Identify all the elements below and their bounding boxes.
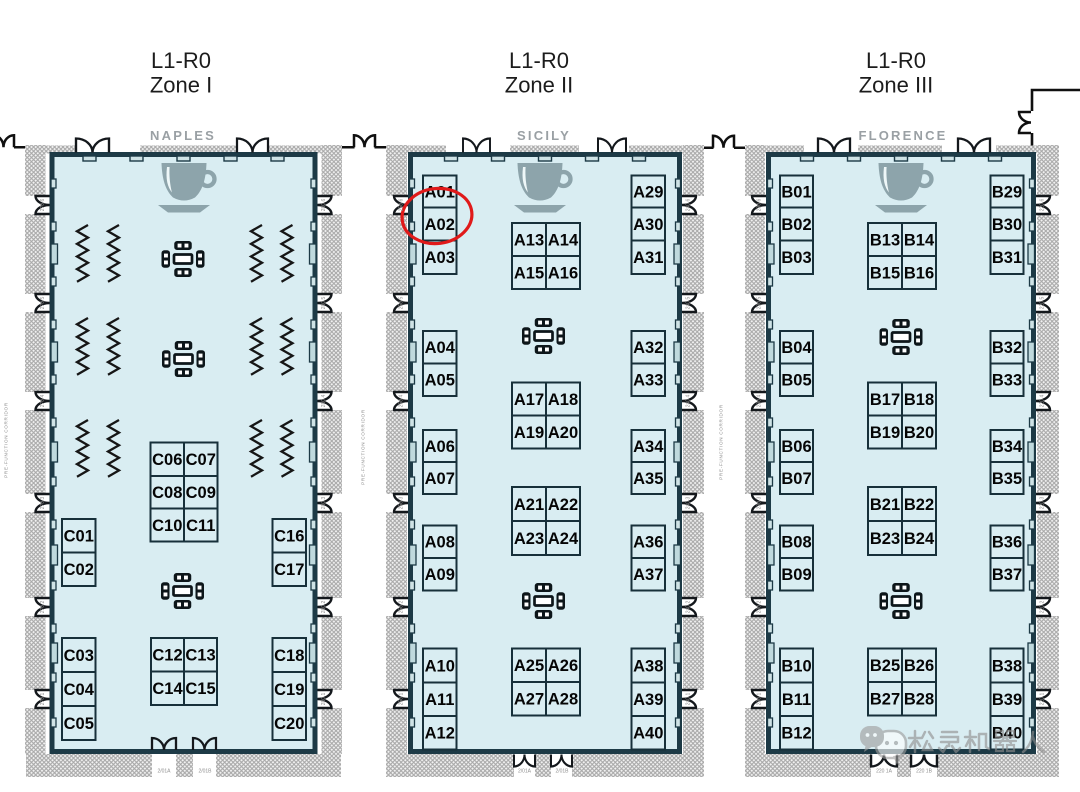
- svg-text:250.1: 250.1: [399, 693, 405, 706]
- svg-text:B07: B07: [781, 470, 811, 488]
- svg-text:B04: B04: [781, 339, 812, 357]
- svg-text:B08: B08: [781, 534, 811, 552]
- svg-text:C05: C05: [64, 715, 94, 733]
- svg-text:B17: B17: [870, 391, 900, 409]
- svg-text:A19: A19: [514, 424, 544, 442]
- svg-text:220.6: 220.6: [1040, 199, 1046, 212]
- svg-text:C01: C01: [64, 528, 94, 546]
- svg-text:A11: A11: [425, 691, 454, 709]
- svg-text:C11: C11: [186, 517, 215, 535]
- svg-text:A36: A36: [633, 534, 663, 552]
- svg-text:A10: A10: [425, 657, 455, 675]
- svg-text:A20: A20: [548, 424, 578, 442]
- svg-text:L1-R0: L1-R0: [151, 48, 211, 73]
- svg-text:A27: A27: [514, 691, 544, 709]
- svg-text:220.5: 220.5: [1040, 297, 1046, 310]
- svg-text:C09: C09: [186, 484, 216, 502]
- svg-text:2/01A: 2/01A: [518, 769, 532, 775]
- svg-text:240.2: 240.2: [686, 601, 692, 614]
- svg-text:A12: A12: [425, 725, 455, 743]
- svg-text:220.2: 220.2: [1040, 601, 1046, 614]
- svg-text:250.6: 250.6: [399, 199, 405, 212]
- svg-text:A21: A21: [514, 496, 544, 514]
- svg-text:B03: B03: [781, 249, 811, 267]
- svg-text:230.6: 230.6: [757, 199, 763, 212]
- svg-text:B21: B21: [870, 496, 900, 514]
- svg-text:C15: C15: [185, 680, 215, 698]
- svg-text:220 1A: 220 1A: [876, 769, 893, 775]
- svg-text:A31: A31: [633, 249, 663, 267]
- svg-text:C06: C06: [152, 451, 182, 469]
- svg-text:B11: B11: [782, 691, 811, 709]
- svg-text:C12: C12: [152, 647, 182, 665]
- svg-text:280.4: 280.4: [321, 395, 327, 408]
- svg-text:B29: B29: [992, 183, 1022, 201]
- svg-text:B14: B14: [904, 231, 935, 249]
- svg-text:230.3: 230.3: [757, 497, 763, 510]
- svg-text:240.4: 240.4: [686, 395, 692, 408]
- svg-text:C03: C03: [64, 647, 94, 665]
- svg-text:B28: B28: [904, 691, 934, 709]
- svg-text:A23: A23: [514, 530, 544, 548]
- svg-text:Zone I: Zone I: [150, 73, 212, 98]
- svg-text:270.4: 270.4: [40, 395, 46, 408]
- svg-text:B33: B33: [992, 372, 1022, 390]
- svg-text:A16: A16: [548, 264, 578, 282]
- svg-text:B15: B15: [870, 264, 900, 282]
- svg-text:C17: C17: [274, 561, 304, 579]
- svg-text:FLORENCE: FLORENCE: [858, 128, 947, 143]
- svg-text:C08: C08: [152, 484, 182, 502]
- svg-text:270.3: 270.3: [40, 497, 46, 510]
- svg-text:270.5: 270.5: [40, 297, 46, 310]
- svg-text:B32: B32: [992, 339, 1022, 357]
- svg-text:B02: B02: [781, 216, 811, 234]
- svg-text:NAPLES: NAPLES: [150, 128, 216, 143]
- svg-text:C02: C02: [64, 561, 94, 579]
- svg-text:250.3: 250.3: [399, 497, 405, 510]
- svg-text:A24: A24: [548, 530, 579, 548]
- svg-text:A37: A37: [633, 566, 663, 584]
- svg-text:240.5: 240.5: [686, 297, 692, 310]
- svg-text:B26: B26: [904, 657, 934, 675]
- svg-text:A01: A01: [425, 183, 455, 201]
- svg-text:B24: B24: [904, 530, 935, 548]
- svg-text:C04: C04: [64, 681, 95, 699]
- svg-text:240.3: 240.3: [686, 497, 692, 510]
- svg-text:A25: A25: [514, 657, 544, 675]
- svg-text:A22: A22: [548, 496, 578, 514]
- svg-text:A40: A40: [633, 725, 663, 743]
- svg-text:230.4: 230.4: [757, 395, 763, 408]
- svg-text:A38: A38: [633, 657, 663, 675]
- svg-text:A04: A04: [425, 339, 456, 357]
- svg-text:A07: A07: [425, 470, 455, 488]
- svg-text:A09: A09: [425, 566, 455, 584]
- svg-text:2/01B: 2/01B: [198, 769, 212, 775]
- svg-text:280.5: 280.5: [321, 297, 327, 310]
- svg-text:PRE-FUNCTION CORRIDOR: PRE-FUNCTION CORRIDOR: [4, 402, 9, 478]
- svg-text:B12: B12: [781, 725, 811, 743]
- svg-text:C10: C10: [152, 517, 182, 535]
- svg-text:250.4: 250.4: [399, 395, 405, 408]
- svg-text:A06: A06: [425, 438, 455, 456]
- svg-text:2/01A: 2/01A: [157, 769, 171, 775]
- svg-text:A05: A05: [425, 372, 455, 390]
- svg-text:230.5: 230.5: [757, 297, 763, 310]
- svg-text:A14: A14: [548, 231, 579, 249]
- svg-text:240.1: 240.1: [686, 693, 692, 706]
- svg-text:A28: A28: [548, 691, 578, 709]
- svg-text:270.6: 270.6: [40, 199, 46, 212]
- svg-text:220.4: 220.4: [1040, 395, 1046, 408]
- svg-text:B36: B36: [992, 534, 1022, 552]
- svg-text:270.1: 270.1: [40, 693, 46, 706]
- svg-text:Zone III: Zone III: [859, 73, 934, 98]
- svg-text:B27: B27: [870, 691, 900, 709]
- svg-text:A15: A15: [514, 264, 544, 282]
- svg-text:B23: B23: [870, 530, 900, 548]
- svg-text:C18: C18: [274, 647, 304, 665]
- svg-text:A29: A29: [633, 183, 663, 201]
- svg-text:B06: B06: [781, 438, 811, 456]
- svg-text:270.2: 270.2: [40, 601, 46, 614]
- svg-text:C14: C14: [152, 680, 183, 698]
- svg-text:PRE-FUNCTION CORRIDOR: PRE-FUNCTION CORRIDOR: [719, 404, 724, 480]
- svg-text:B30: B30: [992, 216, 1022, 234]
- svg-text:Zone II: Zone II: [505, 73, 573, 98]
- svg-text:B20: B20: [904, 424, 934, 442]
- svg-text:A08: A08: [425, 534, 455, 552]
- svg-text:C07: C07: [186, 451, 216, 469]
- svg-text:B39: B39: [992, 691, 1022, 709]
- svg-text:A39: A39: [633, 691, 663, 709]
- svg-text:A03: A03: [425, 249, 455, 267]
- svg-text:B34: B34: [992, 438, 1023, 456]
- svg-text:220 1B: 220 1B: [916, 769, 933, 775]
- svg-text:A17: A17: [514, 391, 544, 409]
- svg-text:A34: A34: [633, 438, 664, 456]
- svg-text:230.1: 230.1: [757, 693, 763, 706]
- svg-text:B35: B35: [992, 470, 1022, 488]
- svg-text:L1-R0: L1-R0: [509, 48, 569, 73]
- svg-text:PRE-FUNCTION CORRIDOR: PRE-FUNCTION CORRIDOR: [361, 409, 366, 485]
- svg-text:230.2: 230.2: [757, 601, 763, 614]
- svg-text:A02: A02: [425, 216, 455, 234]
- svg-text:B13: B13: [870, 231, 900, 249]
- svg-text:SICILY: SICILY: [517, 128, 571, 143]
- svg-text:220.3: 220.3: [1040, 497, 1046, 510]
- svg-text:A33: A33: [633, 372, 663, 390]
- svg-text:C13: C13: [185, 647, 215, 665]
- svg-text:B19: B19: [870, 424, 900, 442]
- svg-text:B18: B18: [904, 391, 934, 409]
- svg-text:250.2: 250.2: [399, 601, 405, 614]
- svg-text:280.6: 280.6: [321, 199, 327, 212]
- svg-text:280.1: 280.1: [321, 693, 327, 706]
- svg-text:B31: B31: [992, 249, 1022, 267]
- svg-text:A35: A35: [633, 470, 663, 488]
- svg-text:280.3: 280.3: [321, 497, 327, 510]
- svg-text:B25: B25: [870, 657, 900, 675]
- svg-text:B10: B10: [781, 657, 811, 675]
- svg-text:B16: B16: [904, 264, 934, 282]
- svg-text:C19: C19: [274, 681, 304, 699]
- svg-text:B22: B22: [904, 496, 934, 514]
- svg-text:2/01B: 2/01B: [555, 769, 569, 775]
- svg-text:A32: A32: [633, 339, 663, 357]
- svg-text:C16: C16: [274, 528, 304, 546]
- svg-text:B01: B01: [781, 183, 811, 201]
- svg-text:B05: B05: [781, 372, 811, 390]
- svg-text:250.5: 250.5: [399, 297, 405, 310]
- svg-text:220.1: 220.1: [1040, 693, 1046, 706]
- svg-text:A18: A18: [548, 391, 578, 409]
- svg-text:A26: A26: [548, 657, 578, 675]
- svg-text:L1-R0: L1-R0: [866, 48, 926, 73]
- svg-text:280.2: 280.2: [321, 601, 327, 614]
- svg-text:C20: C20: [274, 715, 304, 733]
- svg-text:A13: A13: [514, 231, 544, 249]
- svg-text:B38: B38: [992, 657, 1022, 675]
- svg-text:240.6: 240.6: [686, 199, 692, 212]
- svg-text:B09: B09: [781, 566, 811, 584]
- svg-text:A30: A30: [633, 216, 663, 234]
- svg-text:B37: B37: [992, 566, 1022, 584]
